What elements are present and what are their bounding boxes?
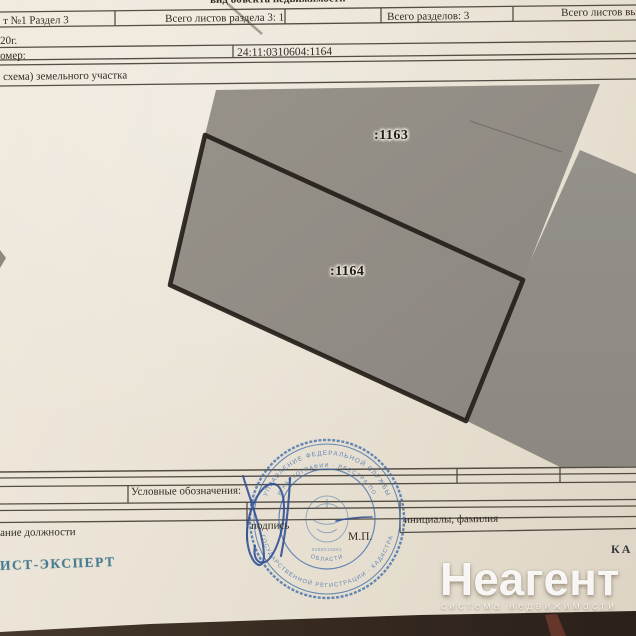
- parcel-label-1163: :1163: [374, 128, 408, 144]
- header-cell-sheet: т №1 Раздел 3: [3, 14, 69, 27]
- date-fragment: 20г.: [0, 35, 17, 47]
- initials-surname-label: инициалы, фамилия: [404, 513, 498, 526]
- document-graphics: УПРАВЛЕНИЕ ФЕДЕРАЛЬНОЙ СЛУЖБЫ И КАРТОГРА…: [0, 0, 636, 636]
- stamp-arc-inner-text: ОБЛАСТИ: [310, 554, 345, 563]
- signature-label: подпись: [251, 520, 289, 533]
- left-edge-mark: [0, 250, 6, 268]
- stamp-serial-number: 0489010661: [312, 547, 343, 552]
- header-cell-total-sections: Всего разделов: 3: [387, 9, 469, 22]
- stamp-arc-mid-text: И КАРТОГРАФИИ · РЕЕСТРА ПО: [277, 463, 377, 497]
- tabletop-background: [0, 611, 636, 636]
- header-cell-total-sheets: Всего листов вы: [561, 6, 636, 19]
- header-cell-sheets-of-section: Всего листов раздела 3: 1: [165, 12, 284, 26]
- legend-label: Условные обозначения:: [131, 485, 241, 498]
- stamp-place-label: М.П.: [348, 531, 372, 544]
- stamp-emblem: [312, 499, 342, 533]
- watermark-tagline: система недвижимости: [441, 601, 617, 612]
- parcel-label-1164: :1164: [330, 264, 364, 280]
- watermark-brand: Неагент: [440, 552, 636, 606]
- cadastral-number-value: 24:11:0310604:1164: [237, 45, 332, 59]
- cadastral-number-label: омер:: [0, 50, 26, 62]
- plan-caption: схема) земельного участка: [3, 69, 127, 83]
- position-label: ание должности: [0, 526, 76, 539]
- document-photo: УПРАВЛЕНИЕ ФЕДЕРАЛЬНОЙ СЛУЖБЫ И КАРТОГРА…: [0, 0, 636, 636]
